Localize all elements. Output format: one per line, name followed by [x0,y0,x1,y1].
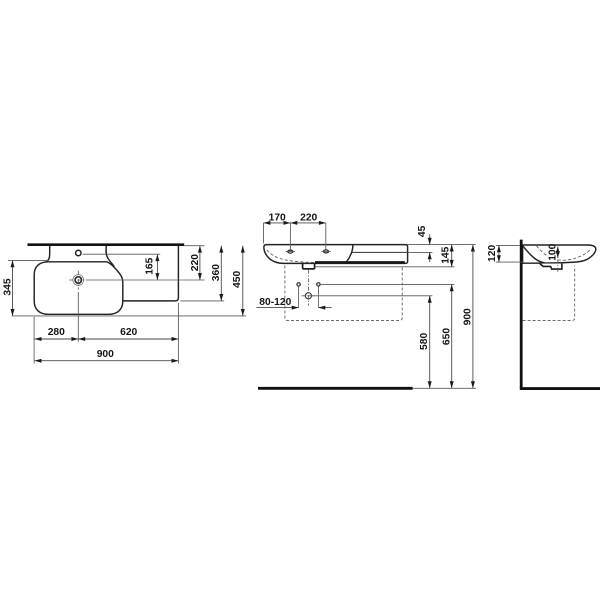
svg-text:165: 165 [145,257,156,274]
svg-text:360: 360 [211,264,222,281]
svg-text:900: 900 [463,308,474,325]
svg-text:100: 100 [548,243,559,260]
svg-text:900: 900 [97,349,114,360]
svg-text:220: 220 [300,212,317,223]
svg-text:620: 620 [120,327,137,338]
svg-text:170: 170 [269,212,286,223]
svg-text:145: 145 [441,246,452,263]
svg-text:80-120: 80-120 [259,297,291,308]
svg-text:345: 345 [3,278,14,295]
svg-text:45: 45 [417,225,428,237]
svg-text:120: 120 [487,245,498,262]
svg-text:450: 450 [232,271,243,288]
svg-text:220: 220 [190,254,201,271]
svg-text:580: 580 [419,333,430,350]
svg-text:650: 650 [441,328,452,345]
svg-text:280: 280 [48,327,65,338]
